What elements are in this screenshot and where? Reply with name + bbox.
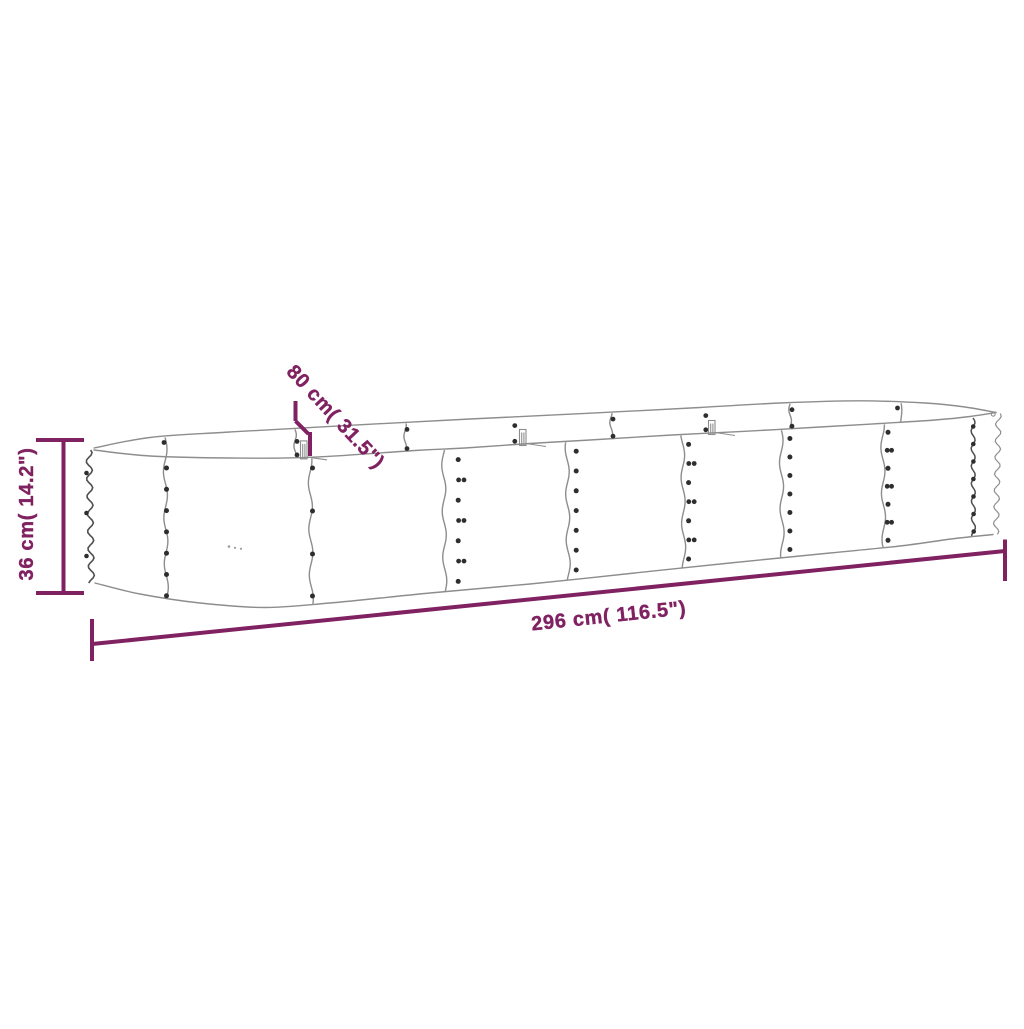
svg-text:36 cm( 14.2"): 36 cm( 14.2"): [16, 447, 38, 580]
